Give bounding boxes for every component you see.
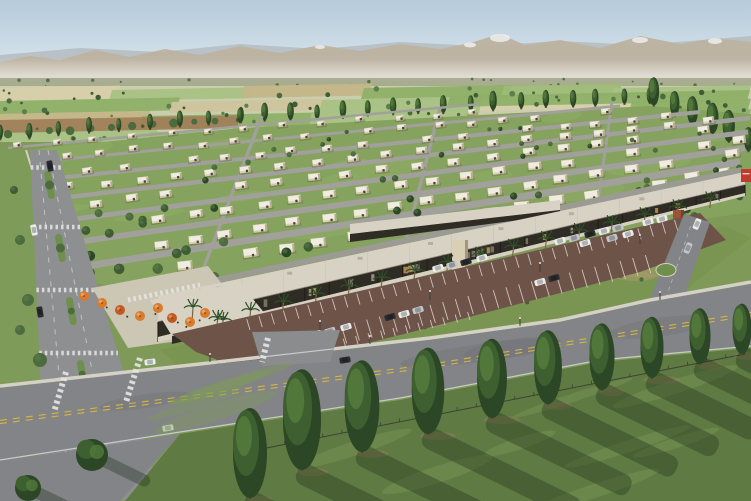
house-door [433, 182, 435, 185]
distant-tree [91, 79, 94, 82]
house-door [441, 124, 444, 127]
house-door [568, 164, 570, 167]
house-door [197, 214, 200, 217]
house [446, 158, 461, 168]
rooftop-unit [569, 212, 574, 215]
snow-cap [490, 34, 510, 42]
person [199, 319, 201, 321]
rooftop-unit [358, 257, 363, 260]
house [623, 164, 640, 175]
house [307, 173, 322, 183]
house-door [291, 150, 293, 153]
house-door [422, 150, 424, 153]
farm-tree [427, 112, 430, 115]
house-door [667, 165, 670, 168]
house-door [354, 158, 357, 161]
house-door [566, 126, 568, 129]
median-tree [56, 244, 65, 253]
house-door [459, 147, 461, 150]
farm-tree [509, 91, 515, 97]
farm-tree [637, 95, 640, 98]
house [219, 206, 235, 217]
distant-tree [490, 79, 492, 81]
house-door [319, 244, 321, 247]
farm-tree [90, 92, 93, 95]
farm-tree [183, 106, 186, 109]
house-door [467, 176, 469, 179]
house-door [418, 166, 421, 169]
farm-tree [699, 90, 704, 95]
house-door [88, 170, 91, 173]
farm-tree [555, 96, 558, 99]
house-door [204, 145, 206, 148]
house-door [606, 111, 608, 114]
farm-tree [221, 112, 224, 115]
house-door [346, 175, 349, 178]
farm-tree [22, 109, 27, 114]
storefront-glow [371, 274, 374, 281]
farm-tree [42, 107, 48, 113]
orchard-tree [46, 127, 53, 134]
traffic-island [656, 264, 676, 277]
house-door [225, 157, 227, 160]
house-door [530, 152, 532, 155]
distant-tree [660, 83, 662, 85]
farm-tree [532, 91, 535, 94]
rooftop-unit [639, 197, 644, 200]
farm-tree [7, 98, 12, 103]
median-tree [45, 180, 54, 189]
house-door [330, 219, 332, 222]
house-door [400, 117, 402, 120]
house-door [261, 155, 263, 158]
house [89, 200, 104, 210]
house-door [387, 154, 390, 157]
house-door [362, 214, 364, 217]
house-door [159, 219, 162, 222]
house-door [244, 128, 246, 131]
shrub [639, 277, 643, 281]
car-roof [147, 359, 154, 364]
house [425, 177, 441, 188]
farm-tree [252, 120, 256, 124]
farm-tree [277, 93, 283, 99]
house-door [463, 198, 465, 201]
distant-tree [187, 78, 190, 81]
car-roof [342, 357, 349, 362]
house-door [283, 124, 285, 127]
person [154, 313, 156, 315]
house-roof [456, 193, 469, 200]
house-door [277, 182, 279, 185]
house-door [428, 139, 431, 142]
house-door [305, 136, 308, 139]
house-door [597, 174, 600, 177]
house [252, 223, 269, 234]
house [352, 208, 369, 219]
house-door [318, 162, 321, 165]
house-door [464, 136, 466, 139]
house-door [493, 143, 495, 146]
distant-tree [733, 83, 735, 85]
house-door [328, 148, 330, 151]
house-door [162, 246, 164, 249]
snow-cap [632, 37, 648, 43]
farm-tree [557, 99, 560, 102]
median-tree [68, 308, 75, 315]
house-door [57, 141, 59, 144]
house-door [566, 136, 568, 139]
house-door [532, 186, 535, 189]
farm-tree [325, 92, 330, 97]
house [100, 180, 114, 189]
farm-tree [309, 107, 312, 110]
house [625, 148, 641, 159]
house-door [740, 140, 742, 143]
house-door [382, 169, 384, 172]
house-door [186, 267, 188, 270]
storefront-glow [264, 299, 268, 307]
house-door [227, 211, 229, 214]
house-door [600, 133, 602, 136]
farm-tree [467, 86, 471, 90]
orchard-tree [212, 118, 219, 125]
house-door [633, 170, 635, 173]
house-door [100, 152, 102, 155]
storefront-glow [526, 238, 528, 244]
house [153, 240, 170, 251]
house-door [535, 118, 537, 121]
house-door [363, 144, 365, 147]
distant-tree [482, 78, 485, 81]
field [0, 86, 120, 101]
farm-tree [457, 113, 460, 116]
house-door [132, 135, 134, 138]
farm-tree [73, 97, 76, 100]
farm-tree [723, 103, 728, 108]
driveway [252, 330, 340, 366]
orchard-tree [191, 119, 197, 125]
house-door [177, 176, 179, 179]
house-door [315, 177, 317, 180]
house [454, 192, 471, 203]
house [552, 174, 569, 185]
house-door [595, 124, 597, 127]
house-door [598, 144, 600, 147]
farm-tree [660, 94, 666, 100]
storefront-glow [487, 247, 490, 253]
farm-tree [225, 113, 229, 117]
house-door [68, 186, 70, 189]
farm-tree [611, 97, 616, 102]
storefront-glow [655, 208, 658, 213]
house-door [363, 191, 365, 194]
orchard-tree [169, 119, 178, 128]
snow-cap [315, 45, 325, 49]
rooftop-unit [428, 242, 433, 245]
house [527, 161, 543, 171]
rooftop-unit [498, 227, 503, 230]
snow-cap [464, 43, 476, 48]
rooftop-unit [287, 272, 292, 275]
farm-tree [742, 108, 746, 112]
house-door [705, 146, 707, 149]
house-door [293, 222, 295, 225]
house-door [194, 159, 197, 162]
house-door [173, 132, 176, 135]
house-door [261, 229, 263, 232]
house [187, 235, 204, 246]
farm-tree [141, 124, 144, 127]
farm-tree [166, 104, 171, 109]
person [185, 326, 187, 328]
house-door [528, 128, 530, 131]
house-door [234, 140, 236, 143]
farm-tree [20, 102, 23, 105]
house-door [670, 125, 672, 128]
house-door [503, 119, 505, 122]
person [177, 321, 179, 323]
house-door [633, 153, 635, 156]
house-door [527, 139, 529, 142]
house-door [704, 130, 706, 133]
house-door [168, 145, 170, 148]
house-door [133, 198, 136, 201]
house-door [126, 167, 129, 170]
house-door [68, 155, 70, 158]
house-door [93, 138, 95, 141]
person [126, 316, 128, 318]
house [287, 194, 303, 205]
house-door [208, 131, 210, 134]
farm-tree [122, 92, 125, 95]
farm-tree [72, 137, 76, 141]
distant-tree [17, 79, 20, 82]
house-door [633, 120, 636, 123]
house-door [369, 130, 372, 133]
house [697, 140, 713, 151]
storefront-glow [490, 246, 494, 252]
aerial-render [0, 0, 751, 501]
distant-tree [533, 80, 535, 82]
house-door [535, 166, 537, 169]
house-door [709, 120, 712, 123]
house [374, 164, 389, 174]
farm-tree [374, 86, 380, 92]
house-door [496, 192, 498, 195]
farm-tree [534, 102, 539, 107]
farm-tree [474, 93, 479, 98]
orchard-tree [108, 124, 115, 131]
house-door [633, 129, 635, 132]
house-door [18, 144, 20, 147]
snow-cap [708, 38, 722, 44]
house [593, 129, 607, 138]
house [284, 216, 302, 227]
house-door [242, 185, 245, 188]
house-door [225, 235, 228, 238]
house-door [428, 201, 430, 204]
house-door [360, 118, 363, 121]
house [459, 171, 475, 181]
house-door [438, 116, 440, 119]
farm-tree [95, 95, 100, 100]
house-door [667, 116, 669, 119]
house-door [246, 170, 248, 173]
house [557, 143, 572, 153]
farm-tree [36, 128, 39, 131]
house-door [107, 184, 109, 187]
distant-tree [46, 78, 50, 82]
house-door [97, 204, 99, 207]
house-door [494, 157, 497, 160]
person [106, 307, 108, 309]
house-door [561, 180, 563, 183]
house-door [402, 185, 404, 188]
house-door [295, 200, 297, 203]
house [560, 159, 576, 170]
house-door [166, 194, 169, 197]
house-door [268, 137, 271, 140]
house-door [266, 205, 268, 208]
orchard-tree [4, 130, 12, 138]
house-door [144, 180, 146, 183]
house-door [280, 166, 283, 169]
house-door [321, 123, 323, 126]
house [321, 213, 338, 224]
orchard-tree [66, 126, 75, 135]
farm-tree [8, 92, 11, 95]
render-canvas [0, 0, 751, 501]
house-door [500, 171, 503, 174]
farm-tree [406, 101, 410, 105]
farm-tree [712, 89, 715, 92]
distant-tree [562, 78, 565, 81]
farm-tree [110, 115, 113, 118]
distant-tree [367, 80, 370, 83]
house-door [330, 195, 333, 198]
house-door [565, 148, 567, 151]
distant-tree [632, 81, 634, 83]
house-door [472, 111, 474, 114]
house-door [454, 162, 456, 165]
house-door [402, 127, 404, 130]
orchard-tree [128, 122, 136, 130]
distant-tree [471, 78, 474, 81]
house-door [252, 254, 255, 257]
house [731, 135, 747, 146]
distant-tree [120, 81, 122, 83]
house-door [733, 154, 736, 157]
house-door [211, 173, 213, 176]
house-door [197, 240, 199, 243]
farm-tree [3, 107, 7, 111]
monument-sign [741, 169, 751, 182]
farm-tree [244, 104, 248, 108]
house-door [472, 123, 474, 126]
farm-tree [3, 89, 6, 92]
house-door [134, 148, 136, 151]
